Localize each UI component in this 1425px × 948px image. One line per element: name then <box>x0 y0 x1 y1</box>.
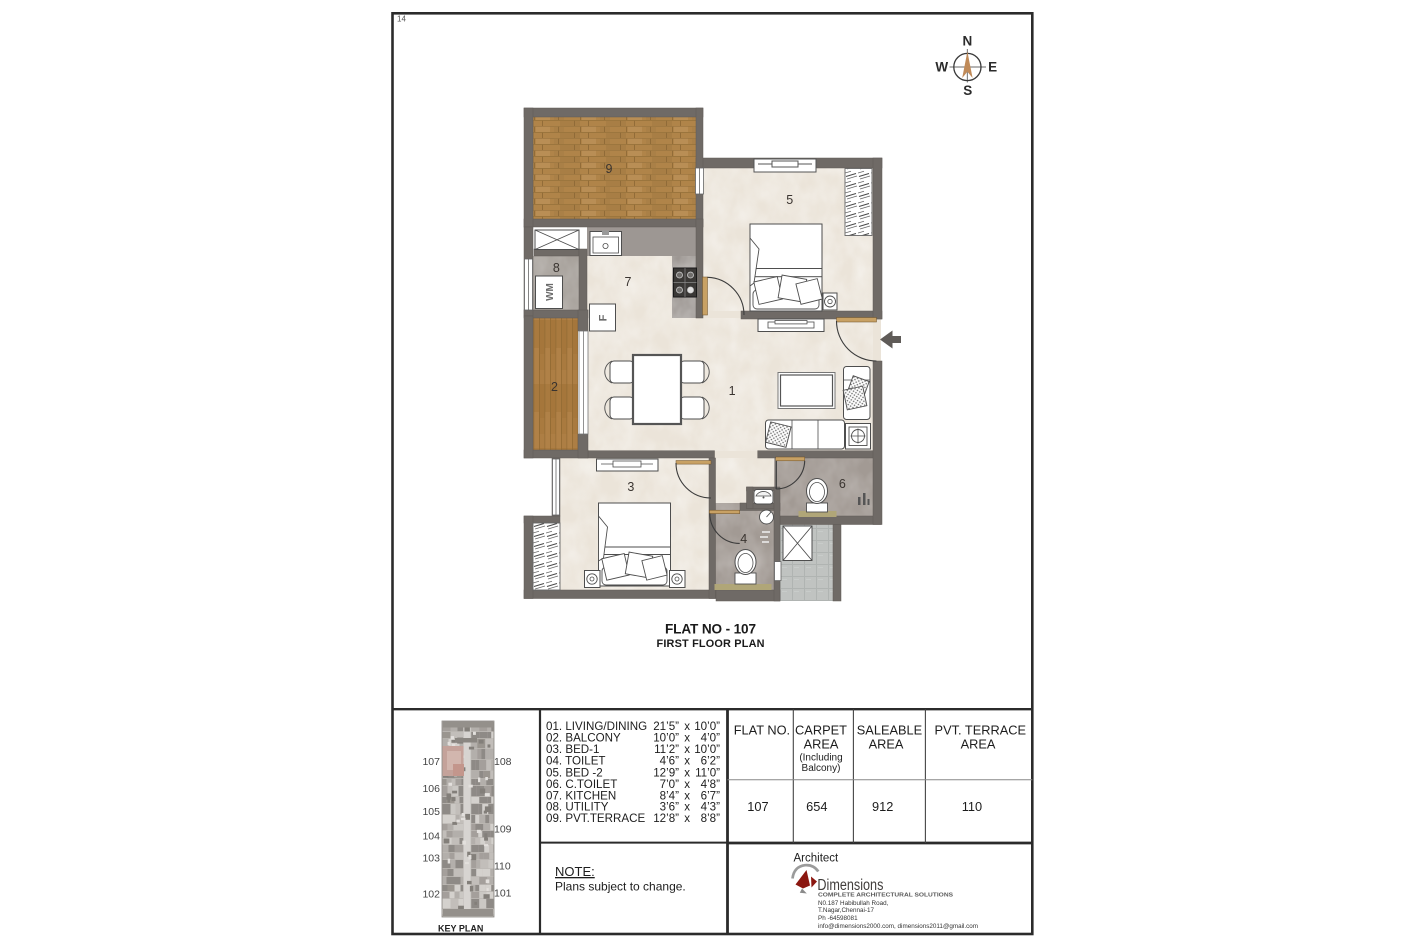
svg-text:8: 8 <box>553 261 560 275</box>
svg-text:4: 4 <box>740 532 747 546</box>
svg-text:N: N <box>963 34 973 49</box>
svg-text:NOTE:: NOTE: <box>555 864 595 879</box>
svg-text:x: x <box>684 812 690 825</box>
svg-text:FLAT NO.: FLAT NO. <box>734 723 790 738</box>
svg-text:AREA: AREA <box>961 737 996 752</box>
svg-text:109: 109 <box>494 824 512 836</box>
svg-text:3: 3 <box>627 480 634 494</box>
svg-text:108: 108 <box>494 756 512 768</box>
svg-text:WM: WM <box>545 283 556 301</box>
svg-text:1: 1 <box>729 384 736 398</box>
svg-text:E: E <box>988 60 997 75</box>
svg-text:654: 654 <box>806 799 827 814</box>
svg-text:Dimensions: Dimensions <box>817 877 883 894</box>
svg-text:912: 912 <box>872 799 893 814</box>
svg-text:103: 103 <box>422 853 440 865</box>
svg-text:107: 107 <box>422 756 440 768</box>
svg-text:info@dimensions2000.com, dimen: info@dimensions2000.com, dimensions2011@… <box>818 923 978 930</box>
svg-text:7: 7 <box>625 275 632 289</box>
svg-text:Balcony): Balcony) <box>802 763 841 774</box>
svg-text:110: 110 <box>494 861 511 873</box>
svg-text:5: 5 <box>786 193 793 207</box>
svg-text:Ph -64598081: Ph -64598081 <box>818 915 858 922</box>
svg-text:12’8”: 12’8” <box>653 812 679 825</box>
svg-text:09. PVT.TERRACE: 09. PVT.TERRACE <box>546 812 645 825</box>
svg-text:8’8”: 8’8” <box>701 812 720 825</box>
svg-text:101: 101 <box>494 888 512 900</box>
svg-text:9: 9 <box>606 162 613 176</box>
svg-text:Plans subject to change.: Plans subject to change. <box>555 880 686 894</box>
svg-text:105: 105 <box>422 806 440 818</box>
svg-text:F: F <box>598 314 610 321</box>
svg-text:N0.187 Habibullah Road,: N0.187 Habibullah Road, <box>818 900 889 907</box>
svg-text:T.Nagar,Chennai-17: T.Nagar,Chennai-17 <box>818 907 875 914</box>
svg-text:SALEABLE: SALEABLE <box>857 723 922 738</box>
svg-text:KEY PLAN: KEY PLAN <box>438 924 483 934</box>
svg-text:(Including: (Including <box>799 753 842 764</box>
svg-text:FLAT NO - 107: FLAT NO - 107 <box>665 622 756 637</box>
svg-text:CARPET: CARPET <box>795 723 847 738</box>
svg-text:AREA: AREA <box>869 737 904 752</box>
svg-text:2: 2 <box>551 380 558 394</box>
svg-text:107: 107 <box>747 799 768 814</box>
svg-text:110: 110 <box>962 799 982 814</box>
svg-text:6: 6 <box>839 477 846 491</box>
svg-text:106: 106 <box>422 783 440 795</box>
svg-text:FIRST FLOOR PLAN: FIRST FLOOR PLAN <box>657 638 765 650</box>
svg-text:104: 104 <box>422 831 440 843</box>
svg-text:COMPLETE ARCHITECTURAL SOLUTIO: COMPLETE ARCHITECTURAL SOLUTIONS <box>818 892 953 898</box>
svg-text:Architect: Architect <box>794 853 840 865</box>
svg-text:W: W <box>935 60 948 75</box>
svg-text:PVT. TERRACE: PVT. TERRACE <box>935 723 1027 738</box>
svg-text:102: 102 <box>422 889 440 901</box>
svg-text:S: S <box>963 83 972 98</box>
svg-text:14: 14 <box>397 15 406 24</box>
svg-text:AREA: AREA <box>804 737 839 752</box>
